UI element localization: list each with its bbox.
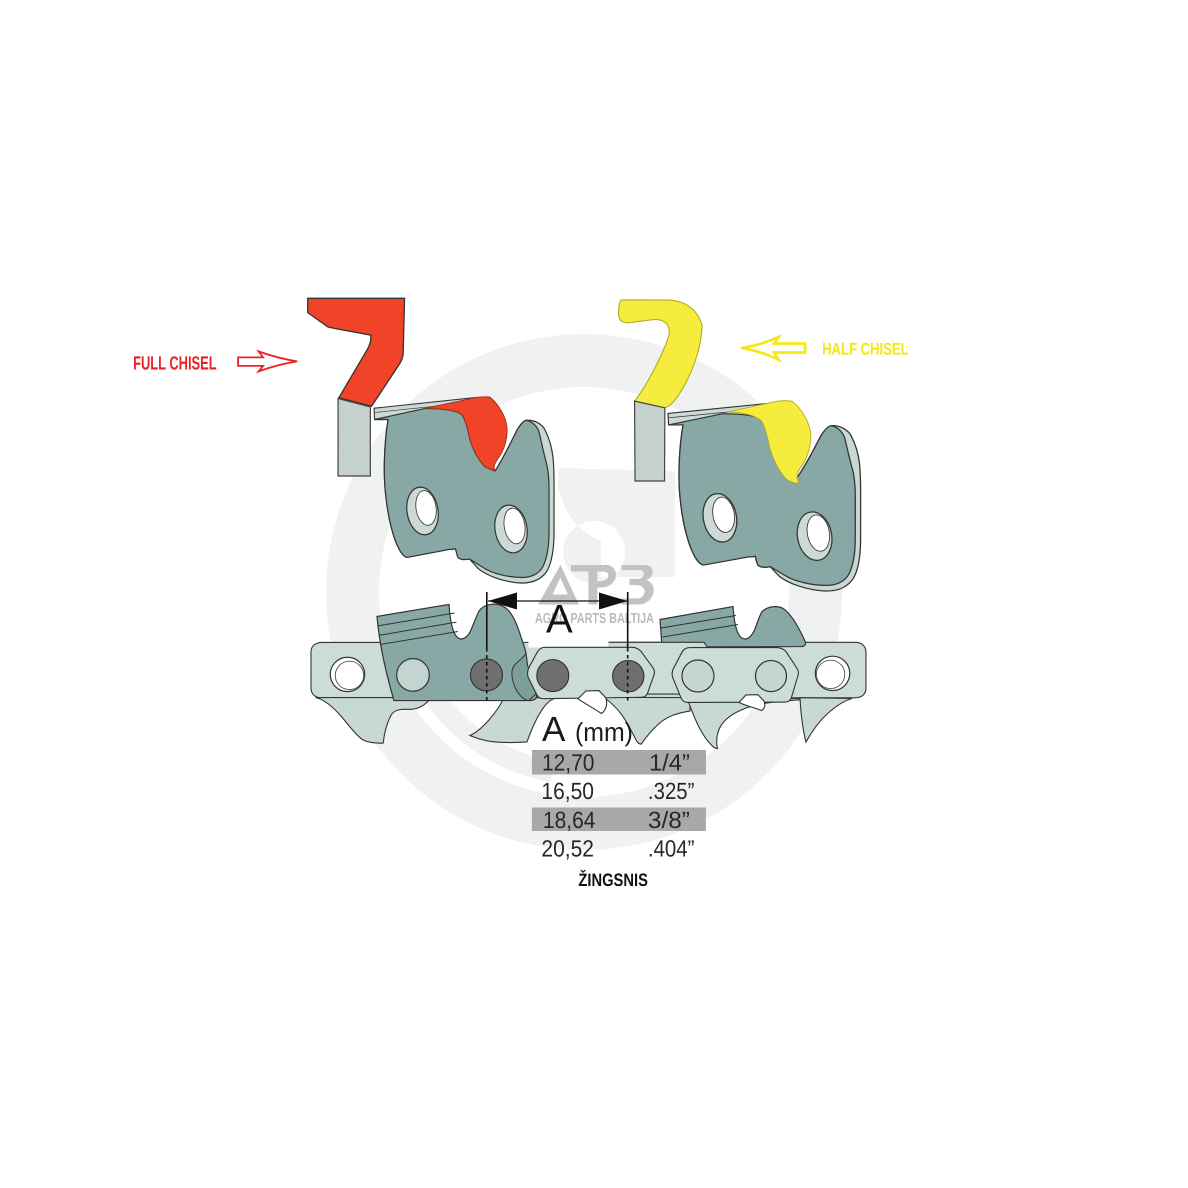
svg-text:18,64: 18,64 — [543, 807, 596, 833]
svg-text:HALF CHISEL: HALF CHISEL — [822, 340, 909, 359]
svg-text:FULL CHISEL: FULL CHISEL — [133, 353, 217, 374]
svg-text:3/8”: 3/8” — [648, 807, 690, 833]
svg-text:(mm): (mm) — [575, 717, 633, 747]
svg-text:1/4”: 1/4” — [649, 750, 690, 776]
svg-text:.404”: .404” — [648, 836, 695, 862]
svg-text:A: A — [546, 597, 573, 641]
svg-text:ŽINGSNIS: ŽINGSNIS — [578, 869, 648, 890]
svg-text:16,50: 16,50 — [541, 778, 594, 804]
svg-text:.325”: .325” — [648, 778, 695, 804]
svg-text:A: A — [542, 710, 566, 749]
svg-text:20,52: 20,52 — [541, 835, 594, 861]
svg-text:12,70: 12,70 — [542, 749, 595, 775]
